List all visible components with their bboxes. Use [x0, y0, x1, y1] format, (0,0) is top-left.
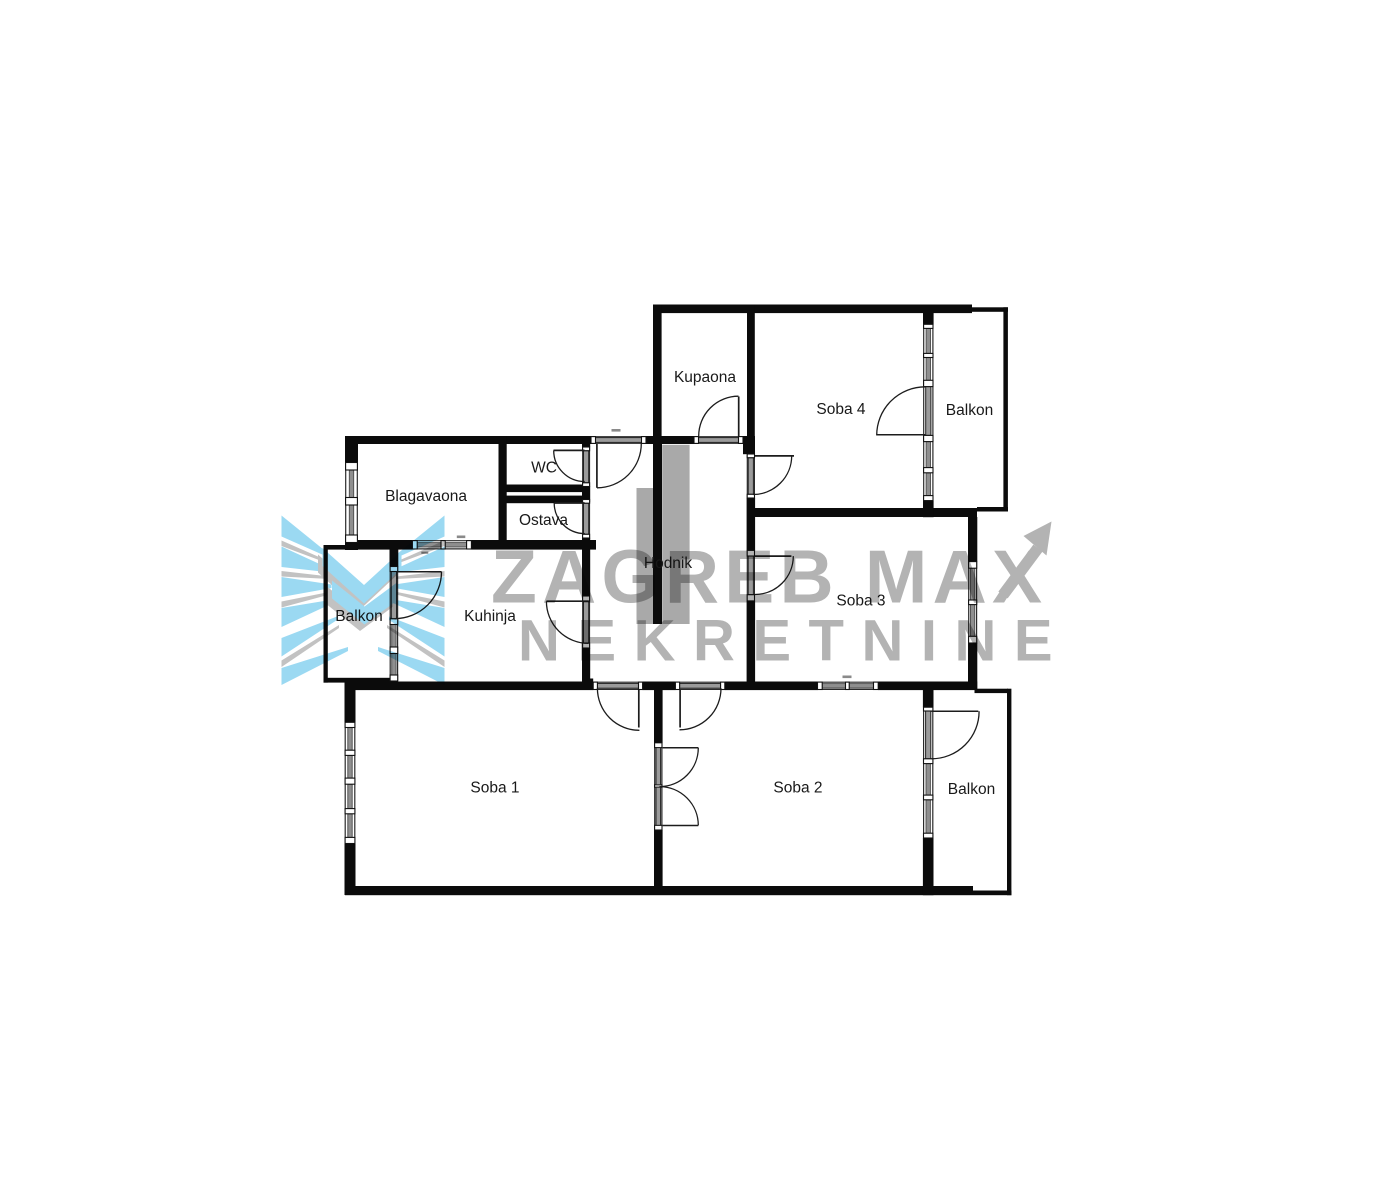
- svg-text:Balkon: Balkon: [946, 402, 993, 419]
- svg-text:WC: WC: [531, 459, 557, 476]
- svg-text:Balkon: Balkon: [948, 781, 995, 798]
- svg-text:Soba 4: Soba 4: [816, 401, 866, 418]
- svg-text:NEKRETNINE: NEKRETNINE: [518, 609, 1070, 674]
- svg-text:Blagavaona: Blagavaona: [385, 488, 467, 505]
- svg-text:ZAGREB MAX: ZAGREB MAX: [491, 535, 1047, 619]
- svg-text:Soba 1: Soba 1: [470, 779, 519, 796]
- svg-text:Ostava: Ostava: [519, 512, 568, 529]
- svg-text:Soba 2: Soba 2: [773, 779, 822, 796]
- svg-text:Kupaona: Kupaona: [674, 369, 736, 386]
